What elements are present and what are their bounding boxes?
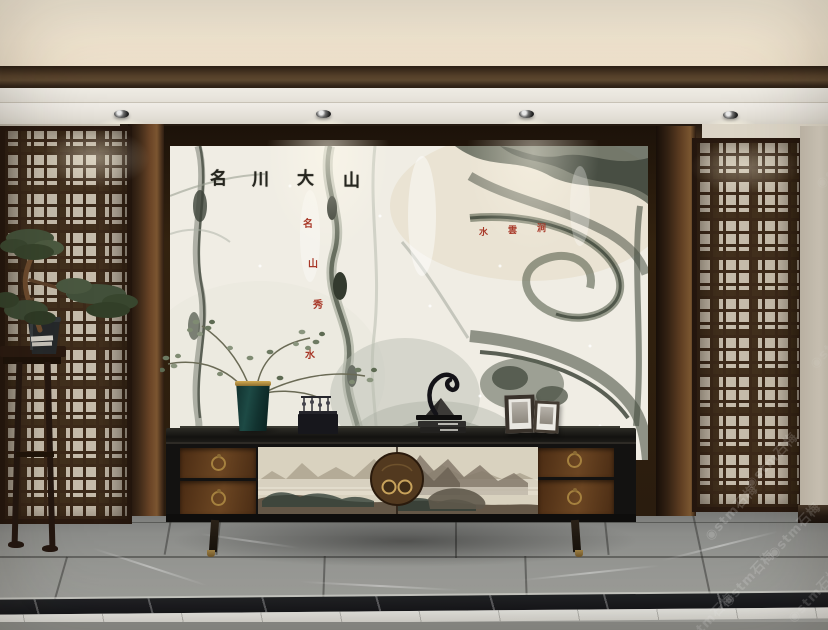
seal-char: 雲 [508,223,517,236]
seal-char: 水 [479,225,488,238]
calligraphy-char-chuan: 川 [252,165,269,190]
right-lattice-shading [692,138,804,512]
plant-stand-foot [42,545,58,552]
cabinet-leg-brass-foot [575,550,583,557]
decor-bead-stand [298,394,340,436]
light-pool [266,140,390,252]
calligraphy-char-shan: 山 [343,166,360,191]
plant-stand-stretcher [16,452,54,457]
cabinet-bottom-rail [166,514,636,522]
book-spine-text [440,429,458,431]
light-pool [690,140,800,194]
book-spine-text [438,423,458,425]
spotlight-3 [519,110,534,118]
vase-gold-rim [235,381,271,386]
spotlight-1 [114,110,129,118]
seal-char: 山 [308,255,318,270]
framed-photo [540,407,554,425]
cabinet-floor-shadow [170,515,640,567]
photo-frame-small [533,400,560,433]
seal-char: 名 [303,215,313,230]
medallion-handle [371,453,423,505]
ring-pull [567,453,582,468]
calligraphy-char-ming: 名 [210,164,227,189]
living-room-render: 名 川 大 山 名 山 秀 水 水 雲 涧 [0,0,828,630]
cabinet-door-landscape-painting [258,447,538,517]
seal-char: 涧 [537,221,546,234]
seal-char: 秀 [313,296,323,311]
ring-pull [211,491,226,506]
light-pool [40,128,150,188]
crown-molding [0,88,828,103]
cabinet-front-highlight [166,442,636,444]
abstract-sculpture [414,368,466,420]
spotlight-2 [316,110,331,118]
bonsai-foliage [0,229,138,325]
plant-stand-foot [8,541,24,548]
bonsai-plant [0,222,148,358]
cabinet-leg-brass-foot [207,550,215,557]
framed-photo [512,402,529,424]
ring-pull [211,456,226,471]
ceiling-wood-beam [0,66,828,88]
ring-pull [567,490,582,505]
vase-branches [160,318,380,402]
eucalyptus-leaves [160,320,377,387]
ceiling-cove-light [0,0,828,68]
right-wood-pillar [656,126,696,516]
calligraphy-char-da: 大 [297,164,314,189]
plant-stand-apron [3,357,61,364]
photo-frame-large [504,394,535,433]
